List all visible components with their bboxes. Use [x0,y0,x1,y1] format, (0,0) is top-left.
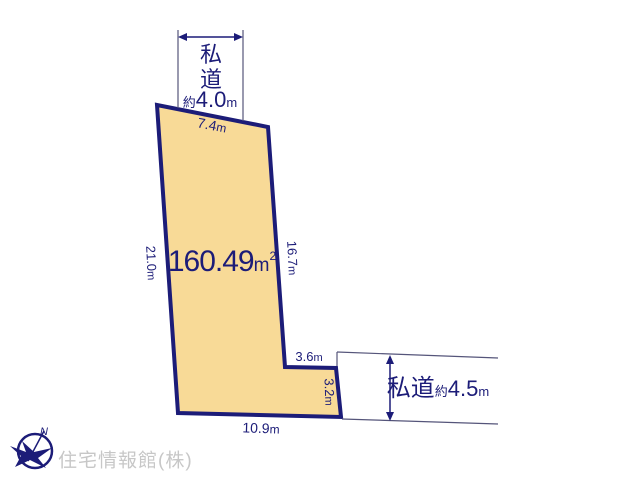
side-road-top-boundary-line [337,352,498,358]
compass-icon: N [10,426,52,468]
dim-step-top-label: 3.6m [295,350,322,364]
dim-left-label: 21.0m [143,245,159,280]
dim-step-side-label: 3.2m [322,378,337,406]
site-plan-drawing: N [0,0,640,480]
top-road-width-label: 約4.0m [183,89,237,111]
site-plan: N 私 道 約4.0m 7.4m 21.0m 160.49m2 16.7m 3.… [0,0,640,480]
north-label: N [40,426,48,438]
top-road-width-arrow [178,33,243,41]
dim-right-label: 16.7m [284,240,300,275]
top-road-name-label: 私 道 [200,42,222,92]
side-road-bottom-boundary-line [342,419,498,424]
plot-area-label: 160.49m2 [168,247,276,277]
dim-bottom-label: 10.9m [242,420,280,435]
side-road-label: 私道約4.5m [387,377,489,401]
watermark-logo-text: 住宅情報館(株) [58,452,193,471]
